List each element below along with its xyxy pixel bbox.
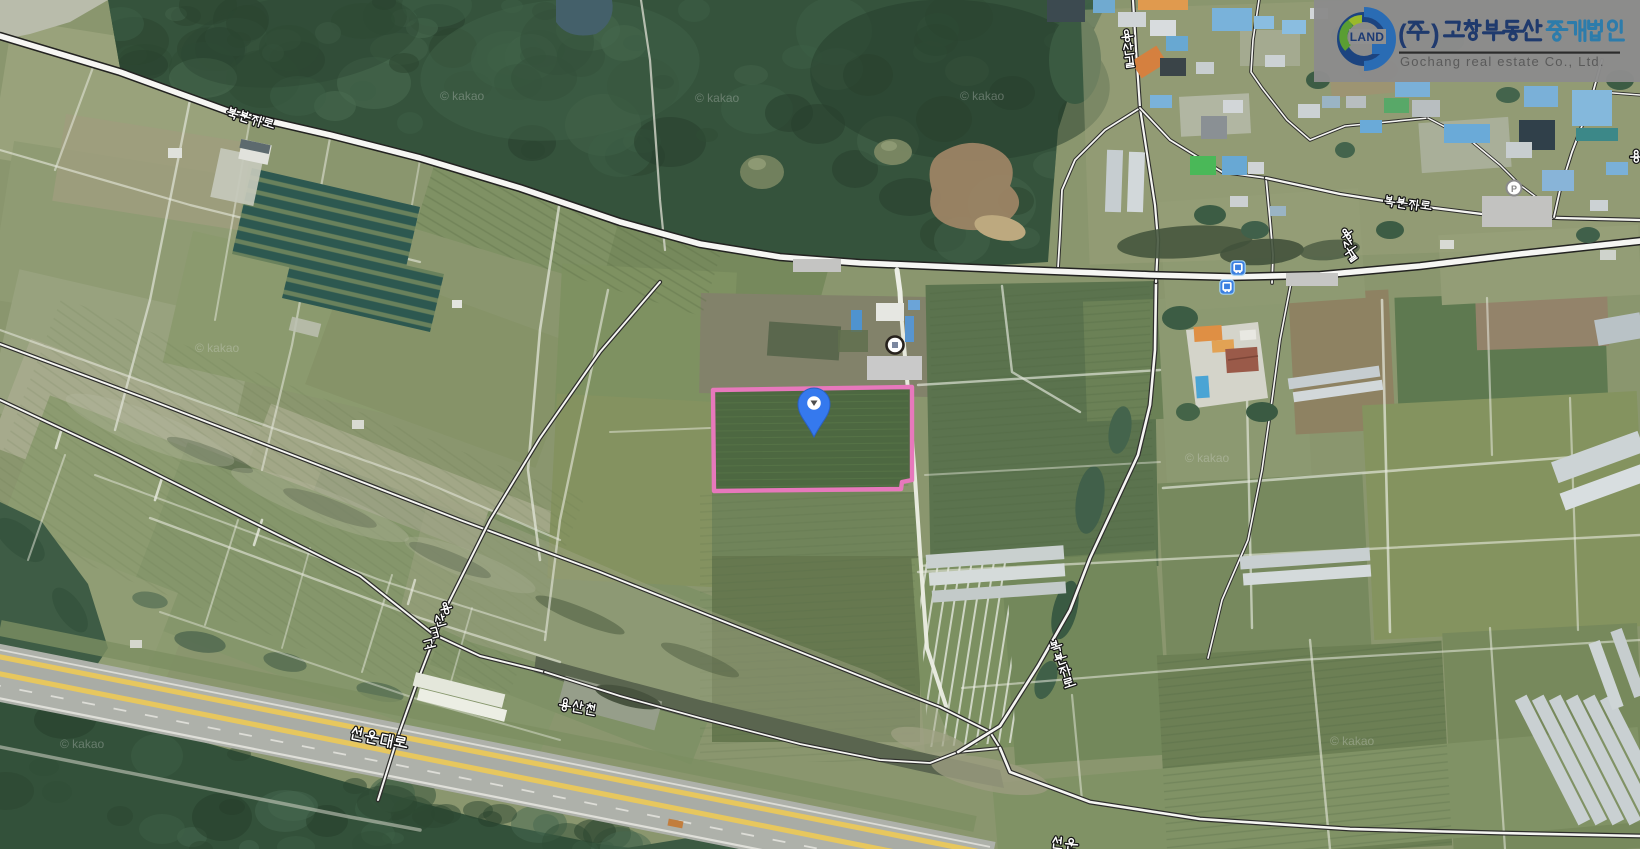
svg-text:© kakao: © kakao (695, 91, 740, 105)
svg-text:): ) (1431, 19, 1440, 49)
svg-text:© kakao: © kakao (1330, 734, 1375, 748)
svg-text:© kakao: © kakao (195, 341, 240, 355)
svg-text:© kakao: © kakao (60, 737, 105, 751)
svg-text:© kakao: © kakao (1185, 451, 1230, 465)
svg-text:(: ( (1398, 19, 1407, 49)
svg-text:© kakao: © kakao (440, 89, 485, 103)
svg-text:LAND: LAND (1350, 30, 1385, 44)
svg-text:© kakao: © kakao (960, 89, 1005, 103)
svg-text:Gochang real estate Co., Ltd.: Gochang real estate Co., Ltd. (1400, 54, 1605, 69)
svg-text:P: P (1511, 184, 1517, 194)
